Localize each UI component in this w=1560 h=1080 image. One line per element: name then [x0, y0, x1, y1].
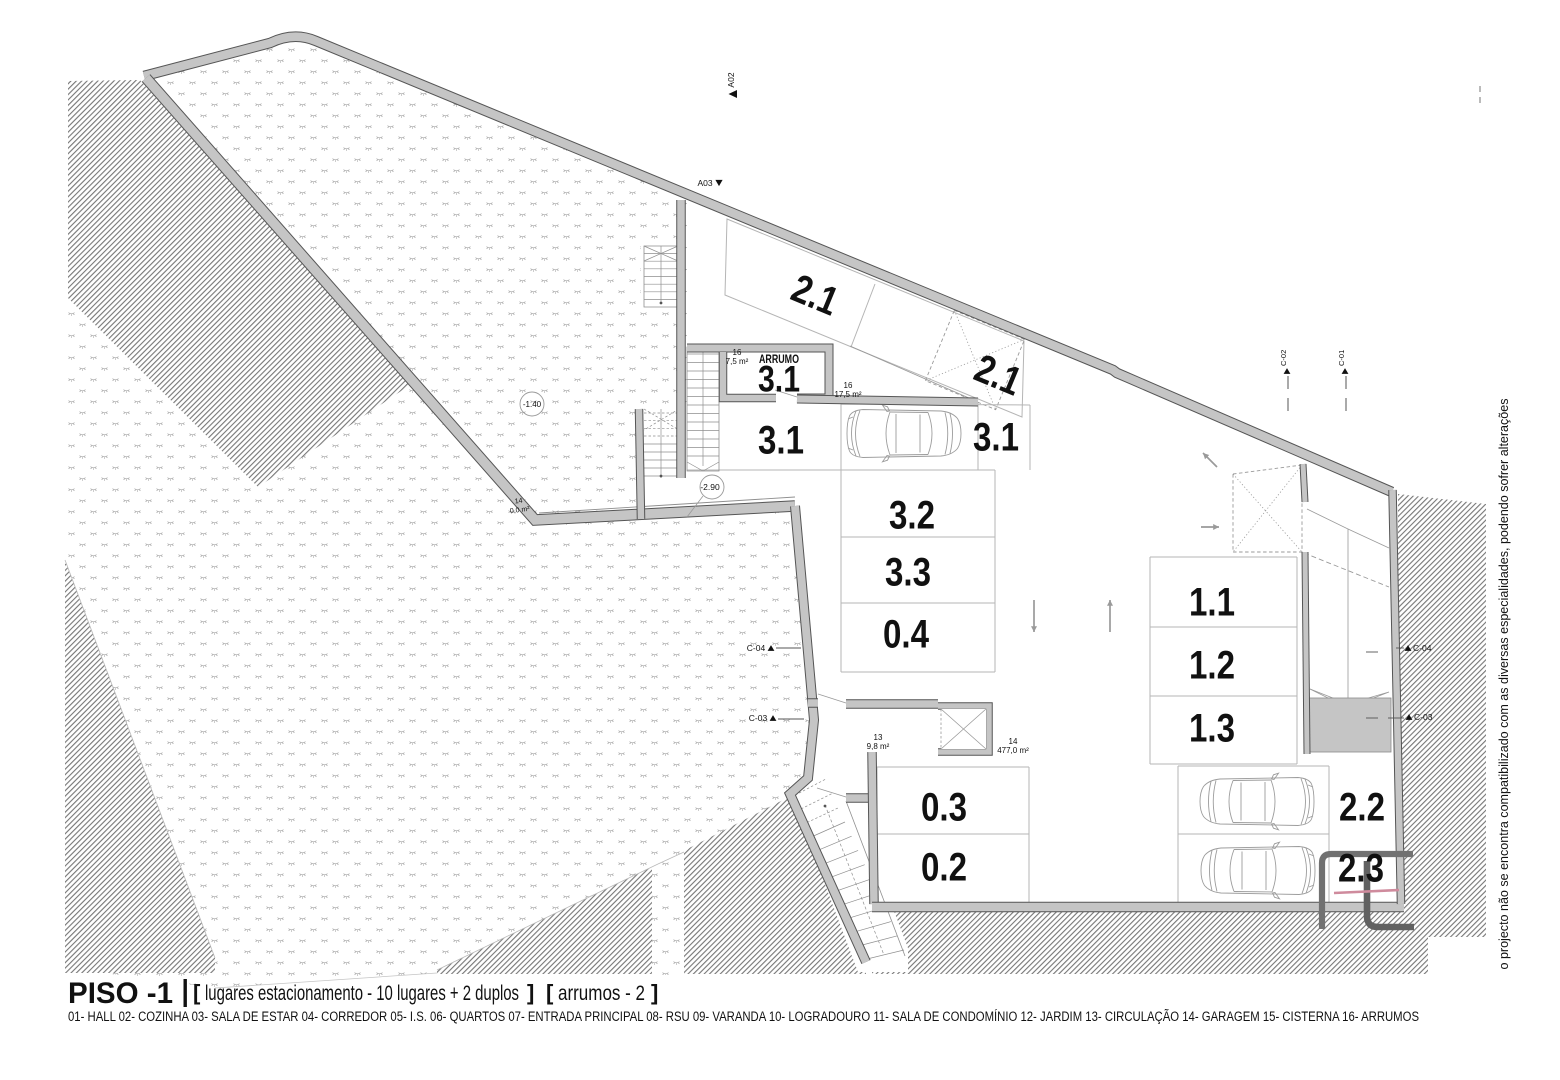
svg-text:3.2: 3.2	[889, 493, 935, 537]
svg-text:-1.40: -1.40	[523, 400, 542, 409]
svg-text:477,0 m²: 477,0 m²	[997, 746, 1029, 755]
svg-text:2.2: 2.2	[1339, 785, 1385, 829]
svg-text:-2.90: -2.90	[700, 482, 720, 492]
svg-text:1.1: 1.1	[1189, 580, 1235, 624]
svg-text:C-04: C-04	[1413, 643, 1432, 653]
svg-text:PISO -1: PISO -1	[68, 977, 173, 1010]
svg-text:C-03: C-03	[1414, 712, 1433, 722]
svg-text:7,5 m²: 7,5 m²	[726, 357, 749, 366]
svg-text:3.1: 3.1	[973, 415, 1019, 459]
svg-text:[: [	[193, 980, 201, 1005]
svg-text:C-04: C-04	[747, 643, 766, 653]
svg-text:arrumos - 2: arrumos - 2	[558, 982, 645, 1005]
svg-text:[: [	[546, 980, 554, 1005]
svg-text:A02: A02	[726, 72, 736, 87]
svg-text:3.1: 3.1	[758, 418, 804, 462]
svg-text:16: 16	[733, 348, 742, 357]
svg-text:lugares estacionamento - 10 lu: lugares estacionamento - 10 lugares + 2 …	[205, 982, 519, 1005]
svg-text:01- HALL 02- COZINHA 03- SALA: 01- HALL 02- COZINHA 03- SALA DE ESTAR 0…	[68, 1009, 1419, 1024]
svg-text:14: 14	[514, 498, 523, 506]
svg-text:]: ]	[527, 980, 534, 1005]
svg-text:ARRUMO: ARRUMO	[759, 354, 799, 366]
svg-text:17,5 m²: 17,5 m²	[834, 390, 861, 399]
svg-text:3.3: 3.3	[885, 550, 931, 594]
svg-text:C-01: C-01	[1337, 350, 1346, 366]
svg-text:1.2: 1.2	[1189, 643, 1235, 687]
svg-text:16: 16	[844, 381, 853, 390]
svg-text:C-02: C-02	[1279, 350, 1288, 366]
svg-text:]: ]	[651, 980, 658, 1005]
svg-text:o projecto não se encontra com: o projecto não se encontra compatibiliza…	[1496, 398, 1511, 969]
svg-text:C-03: C-03	[749, 713, 768, 723]
svg-text:0.3: 0.3	[921, 785, 967, 829]
svg-text:1.3: 1.3	[1189, 706, 1235, 750]
svg-text:2.3: 2.3	[1338, 846, 1384, 890]
svg-text:0.4: 0.4	[883, 612, 930, 656]
svg-text:14: 14	[1009, 737, 1018, 746]
svg-text:13: 13	[874, 733, 883, 742]
svg-text:0.2: 0.2	[921, 845, 967, 889]
svg-text:9,8 m²: 9,8 m²	[867, 742, 890, 751]
svg-text:A03: A03	[697, 178, 712, 188]
